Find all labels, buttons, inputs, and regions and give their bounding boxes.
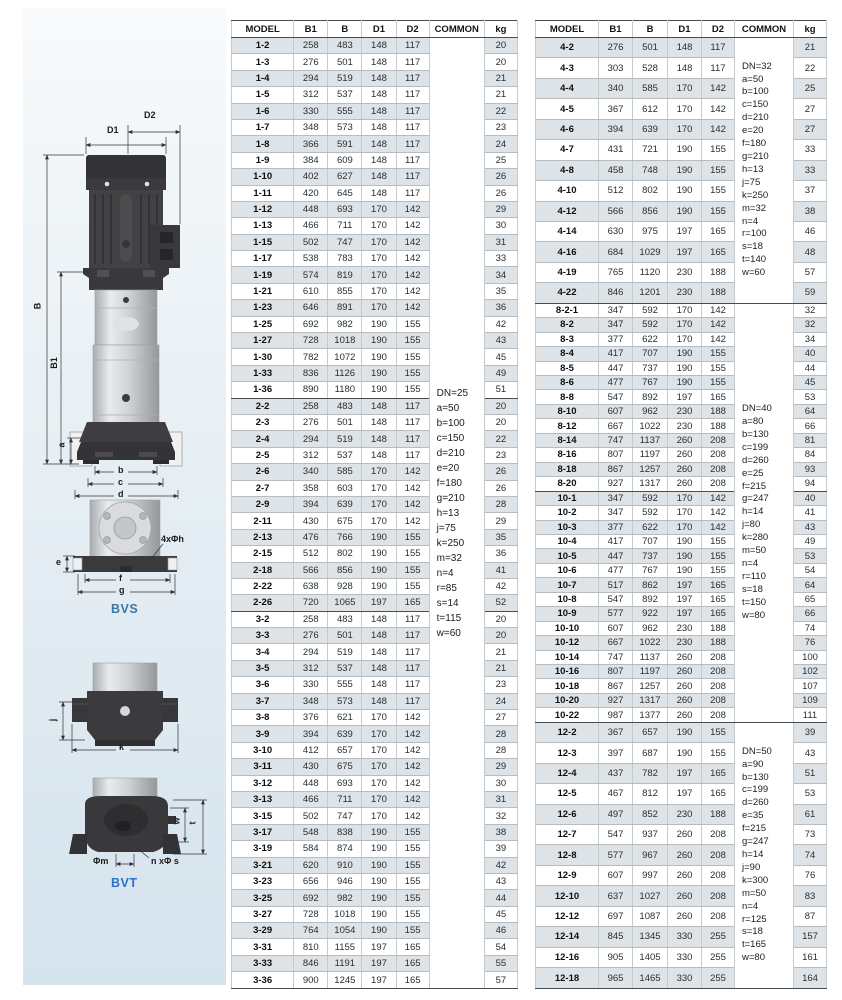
weight-cell: 39 (794, 722, 827, 742)
common-dimension-line: d=260 (742, 797, 793, 810)
model-cell: 2-2 (232, 398, 294, 414)
model-cell: 10-8 (536, 592, 599, 606)
value-cell: 1155 (328, 939, 362, 955)
value-cell: 517 (599, 578, 633, 592)
weight-cell: 26 (484, 185, 517, 201)
model-cell: 1-21 (232, 283, 294, 299)
value-cell: 591 (328, 136, 362, 152)
value-cell: 867 (599, 462, 633, 476)
weight-cell: 26 (484, 480, 517, 496)
value-cell: 148 (362, 152, 396, 168)
value-cell: 197 (668, 390, 702, 404)
value-cell: 347 (599, 491, 633, 505)
value-cell: 547 (599, 592, 633, 606)
table-row: 12-2367657190155DN=50a=90b=130c=199d=260… (536, 722, 827, 742)
common-dimension-line: d=260 (742, 455, 793, 468)
value-cell: 208 (702, 865, 735, 885)
weight-cell: 83 (794, 886, 827, 906)
value-cell: 190 (362, 333, 396, 349)
value-cell: 340 (599, 78, 633, 98)
value-cell: 170 (362, 710, 396, 726)
value-cell: 142 (396, 513, 429, 529)
weight-cell: 46 (484, 923, 517, 939)
value-cell: 170 (668, 119, 702, 139)
value-cell: 573 (328, 119, 362, 135)
weight-cell: 164 (794, 968, 827, 989)
value-cell: 208 (702, 825, 735, 845)
value-cell: 190 (668, 743, 702, 763)
value-cell: 170 (668, 99, 702, 119)
value-cell: 197 (362, 972, 396, 989)
value-cell: 142 (396, 283, 429, 299)
value-cell: 190 (362, 857, 396, 873)
dim-label-n-phi-s: n xΦ s (151, 856, 179, 866)
dim-label-w: w (172, 817, 182, 824)
value-cell: 142 (396, 710, 429, 726)
model-cell: 3-7 (232, 693, 294, 709)
common-dimension-line: n=4 (742, 216, 793, 229)
value-cell: 622 (633, 332, 668, 346)
value-cell: 312 (294, 660, 328, 676)
column-header: kg (484, 21, 517, 38)
model-cell: 3-21 (232, 857, 294, 873)
model-cell: 1-12 (232, 201, 294, 217)
value-cell: 155 (396, 529, 429, 545)
value-cell: 620 (294, 857, 328, 873)
common-dimension-line: m=50 (742, 888, 793, 901)
value-cell: 190 (362, 546, 396, 562)
model-cell: 1-9 (232, 152, 294, 168)
weight-cell: 36 (484, 300, 517, 316)
value-cell: 190 (668, 375, 702, 389)
dim-label-g: g (119, 585, 125, 595)
value-cell: 927 (599, 477, 633, 491)
model-cell: 3-19 (232, 841, 294, 857)
model-cell: 1-7 (232, 119, 294, 135)
value-cell: 856 (328, 562, 362, 578)
value-cell: 148 (362, 54, 396, 70)
common-dimension-line: n=4 (437, 566, 484, 581)
value-cell: 975 (633, 221, 668, 241)
value-cell: 117 (396, 54, 429, 70)
dim-label-d1: D1 (107, 125, 119, 135)
value-cell: 621 (328, 710, 362, 726)
model-cell: 1-11 (232, 185, 294, 201)
value-cell: 142 (396, 726, 429, 742)
value-cell: 117 (396, 398, 429, 414)
value-cell: 170 (362, 218, 396, 234)
model-cell: 4-22 (536, 283, 599, 303)
weight-cell: 36 (484, 546, 517, 562)
value-cell: 657 (633, 722, 668, 742)
weight-cell: 35 (484, 283, 517, 299)
column-header: D2 (702, 21, 735, 38)
column-header: kg (794, 21, 827, 38)
value-cell: 592 (633, 303, 668, 317)
value-cell: 190 (668, 563, 702, 577)
weight-cell: 21 (794, 38, 827, 58)
value-cell: 155 (702, 347, 735, 361)
model-cell: 10-16 (536, 665, 599, 679)
model-cell: 12-18 (536, 968, 599, 989)
value-cell: 748 (633, 160, 668, 180)
value-cell: 155 (396, 562, 429, 578)
value-cell: 170 (362, 496, 396, 512)
common-dimension-line: w=80 (742, 610, 793, 623)
value-cell: 142 (702, 303, 735, 317)
weight-cell: 59 (794, 283, 827, 303)
value-cell: 862 (633, 578, 668, 592)
model-cell: 1-10 (232, 169, 294, 185)
value-cell: 639 (328, 726, 362, 742)
value-cell: 208 (702, 665, 735, 679)
value-cell: 142 (396, 251, 429, 267)
value-cell: 497 (599, 804, 633, 824)
value-cell: 117 (396, 447, 429, 463)
value-cell: 1027 (633, 886, 668, 906)
common-dimension-line: w=60 (742, 267, 793, 280)
value-cell: 142 (396, 496, 429, 512)
weight-cell: 33 (794, 160, 827, 180)
value-cell: 802 (633, 181, 668, 201)
model-cell: 1-33 (232, 365, 294, 381)
value-cell: 538 (294, 251, 328, 267)
common-dimension-line: k=250 (437, 536, 484, 551)
value-cell: 466 (294, 791, 328, 807)
dim-label-d: d (118, 489, 124, 499)
weight-cell: 61 (794, 804, 827, 824)
weight-cell: 42 (484, 316, 517, 332)
value-cell: 188 (702, 621, 735, 635)
weight-cell: 20 (484, 414, 517, 430)
weight-cell: 35 (484, 529, 517, 545)
value-cell: 367 (599, 722, 633, 742)
weight-cell: 38 (484, 824, 517, 840)
value-cell: 155 (396, 873, 429, 889)
common-dimensions-list: DN=50a=90b=130c=199d=260e=35f=215g=247h=… (735, 746, 793, 965)
value-cell: 148 (362, 693, 396, 709)
common-dimension-line: s=14 (437, 596, 484, 611)
value-cell: 437 (599, 763, 633, 783)
value-cell: 260 (668, 679, 702, 693)
weight-cell: 43 (484, 873, 517, 889)
value-cell: 142 (702, 78, 735, 98)
column-header: COMMON (429, 21, 484, 38)
weight-cell: 22 (484, 431, 517, 447)
value-cell: 294 (294, 644, 328, 660)
common-dimension-line: m=32 (437, 551, 484, 566)
weight-cell: 66 (794, 607, 827, 621)
value-cell: 687 (633, 743, 668, 763)
weight-cell: 57 (484, 972, 517, 989)
value-cell: 276 (294, 414, 328, 430)
value-cell: 467 (599, 784, 633, 804)
value-cell: 170 (362, 464, 396, 480)
value-cell: 856 (633, 201, 668, 221)
value-cell: 512 (599, 181, 633, 201)
value-cell: 476 (294, 529, 328, 545)
value-cell: 548 (294, 824, 328, 840)
model-cell: 1-25 (232, 316, 294, 332)
value-cell: 117 (396, 70, 429, 86)
value-cell: 852 (633, 804, 668, 824)
weight-cell: 32 (484, 808, 517, 824)
value-cell: 230 (668, 636, 702, 650)
model-cell: 8-2-1 (536, 303, 599, 317)
weight-cell: 24 (484, 136, 517, 152)
weight-cell: 20 (484, 628, 517, 644)
weight-cell: 20 (484, 38, 517, 54)
model-cell: 1-3 (232, 54, 294, 70)
value-cell: 155 (396, 923, 429, 939)
weight-cell: 51 (484, 382, 517, 398)
value-cell: 684 (599, 242, 633, 262)
value-cell: 420 (294, 185, 328, 201)
value-cell: 347 (599, 318, 633, 332)
model-cell: 3-23 (232, 873, 294, 889)
value-cell: 142 (396, 300, 429, 316)
value-cell: 190 (668, 347, 702, 361)
column-header: D2 (396, 21, 429, 38)
common-dimension-line: e=20 (742, 125, 793, 138)
value-cell: 603 (328, 480, 362, 496)
model-cell: 8-20 (536, 477, 599, 491)
weight-cell: 32 (794, 303, 827, 317)
weight-cell: 55 (484, 955, 517, 971)
value-cell: 260 (668, 665, 702, 679)
value-cell: 165 (702, 784, 735, 804)
common-dimension-line: w=80 (742, 952, 793, 965)
value-cell: 117 (702, 58, 735, 78)
value-cell: 155 (396, 316, 429, 332)
value-cell: 1257 (633, 679, 668, 693)
weight-cell: 81 (794, 433, 827, 447)
value-cell: 528 (633, 58, 668, 78)
weight-cell: 28 (484, 742, 517, 758)
value-cell: 117 (396, 611, 429, 627)
model-cell: 2-15 (232, 546, 294, 562)
model-cell: 3-27 (232, 906, 294, 922)
common-dimensions-cell: DN=40a=80b=130c=199d=260e=25f=215g=247h=… (735, 303, 794, 722)
value-cell: 260 (668, 845, 702, 865)
common-dimension-line: r=85 (437, 581, 484, 596)
value-cell: 230 (668, 262, 702, 282)
model-cell: 1-13 (232, 218, 294, 234)
weight-cell: 22 (484, 103, 517, 119)
value-cell: 637 (599, 886, 633, 906)
value-cell: 1405 (633, 947, 668, 967)
value-cell: 155 (396, 841, 429, 857)
value-cell: 276 (294, 628, 328, 644)
common-dimension-line: m=32 (742, 203, 793, 216)
value-cell: 737 (633, 549, 668, 563)
header-row: MODELB1BD1D2COMMONkg (536, 21, 827, 38)
weight-cell: 21 (484, 660, 517, 676)
value-cell: 148 (362, 136, 396, 152)
value-cell: 607 (599, 404, 633, 418)
value-cell: 330 (668, 947, 702, 967)
value-cell: 117 (396, 693, 429, 709)
weight-cell: 25 (484, 152, 517, 168)
value-cell: 330 (294, 677, 328, 693)
common-dimension-line: e=20 (437, 461, 484, 476)
value-cell: 117 (396, 38, 429, 54)
value-cell: 483 (328, 611, 362, 627)
value-cell: 412 (294, 742, 328, 758)
weight-cell: 66 (794, 419, 827, 433)
value-cell: 458 (599, 160, 633, 180)
common-dimension-line: r=100 (742, 228, 793, 241)
model-cell: 4-10 (536, 181, 599, 201)
value-cell: 812 (633, 784, 668, 804)
weight-cell: 65 (794, 592, 827, 606)
bvt-series-label: BVT (111, 876, 138, 890)
value-cell: 1345 (633, 927, 668, 947)
model-cell: 10-10 (536, 621, 599, 635)
value-cell: 607 (599, 621, 633, 635)
value-cell: 447 (599, 361, 633, 375)
value-cell: 142 (396, 201, 429, 217)
value-cell: 117 (396, 119, 429, 135)
value-cell: 170 (362, 251, 396, 267)
model-cell: 3-3 (232, 628, 294, 644)
value-cell: 962 (633, 404, 668, 418)
value-cell: 190 (362, 873, 396, 889)
common-dimension-line: h=13 (742, 164, 793, 177)
value-cell: 260 (668, 865, 702, 885)
value-cell: 197 (668, 607, 702, 621)
value-cell: 190 (668, 201, 702, 221)
model-cell: 8-3 (536, 332, 599, 346)
weight-cell: 20 (484, 611, 517, 627)
model-cell: 4-8 (536, 160, 599, 180)
value-cell: 117 (396, 87, 429, 103)
value-cell: 155 (702, 140, 735, 160)
table-body: 4-2276501148117DN=32a=50b=100c=150d=210e… (536, 38, 827, 989)
model-cell: 10-5 (536, 549, 599, 563)
weight-cell: 76 (794, 636, 827, 650)
weight-cell: 53 (794, 784, 827, 804)
model-cell: 12-10 (536, 886, 599, 906)
model-cell: 12-6 (536, 804, 599, 824)
weight-cell: 21 (484, 87, 517, 103)
value-cell: 577 (599, 845, 633, 865)
value-cell: 1087 (633, 906, 668, 926)
model-cell: 10-20 (536, 693, 599, 707)
value-cell: 348 (294, 119, 328, 135)
weight-cell: 27 (794, 99, 827, 119)
value-cell: 208 (702, 650, 735, 664)
value-cell: 142 (702, 332, 735, 346)
model-cell: 3-13 (232, 791, 294, 807)
model-cell: 12-12 (536, 906, 599, 926)
bvs-series-label: BVS (111, 602, 138, 616)
value-cell: 1029 (633, 242, 668, 262)
common-dimension-line: s=18 (742, 926, 793, 939)
model-cell: 12-8 (536, 845, 599, 865)
model-cell: 2-6 (232, 464, 294, 480)
value-cell: 807 (599, 448, 633, 462)
value-cell: 155 (702, 361, 735, 375)
model-cell: 10-9 (536, 607, 599, 621)
value-cell: 190 (362, 578, 396, 594)
weight-cell: 73 (794, 825, 827, 845)
model-cell: 12-5 (536, 784, 599, 804)
value-cell: 197 (362, 939, 396, 955)
value-cell: 905 (599, 947, 633, 967)
value-cell: 170 (362, 742, 396, 758)
model-cell: 2-3 (232, 414, 294, 430)
value-cell: 747 (599, 433, 633, 447)
weight-cell: 43 (484, 333, 517, 349)
weight-cell: 109 (794, 693, 827, 707)
value-cell: 537 (328, 447, 362, 463)
value-cell: 384 (294, 152, 328, 168)
model-cell: 3-4 (232, 644, 294, 660)
value-cell: 155 (396, 546, 429, 562)
common-dimension-line: n=4 (742, 901, 793, 914)
value-cell: 1191 (328, 955, 362, 971)
value-cell: 165 (396, 595, 429, 611)
value-cell: 208 (702, 679, 735, 693)
value-cell: 294 (294, 70, 328, 86)
table-header: MODELB1BD1D2COMMONkg (536, 21, 827, 38)
value-cell: 987 (599, 708, 633, 722)
common-dimension-line: h=14 (742, 506, 793, 519)
model-cell: 3-9 (232, 726, 294, 742)
value-cell: 892 (633, 390, 668, 404)
weight-cell: 26 (484, 464, 517, 480)
dim-label-bolt-holes: 4xΦh (161, 534, 184, 544)
value-cell: 537 (328, 660, 362, 676)
base-side-view (59, 663, 178, 753)
weight-cell: 45 (484, 349, 517, 365)
value-cell: 737 (633, 361, 668, 375)
value-cell: 142 (702, 318, 735, 332)
value-cell: 260 (668, 886, 702, 906)
value-cell: 170 (362, 759, 396, 775)
model-cell: 4-6 (536, 119, 599, 139)
value-cell: 946 (328, 873, 362, 889)
dim-label-j: j (47, 719, 57, 722)
weight-cell: 23 (484, 119, 517, 135)
common-dimension-line: f=180 (437, 476, 484, 491)
weight-cell: 57 (794, 262, 827, 282)
common-dimension-line: f=215 (742, 481, 793, 494)
weight-cell: 29 (484, 513, 517, 529)
common-dimension-line: b=100 (437, 416, 484, 431)
value-cell: 585 (633, 78, 668, 98)
pump-technical-drawing (23, 8, 226, 985)
table-header: MODELB1BD1D2COMMONkg (232, 21, 518, 38)
value-cell: 646 (294, 300, 328, 316)
value-cell: 967 (633, 845, 668, 865)
common-dimension-line: b=130 (742, 429, 793, 442)
value-cell: 170 (362, 201, 396, 217)
weight-cell: 43 (794, 743, 827, 763)
model-cell: 8-18 (536, 462, 599, 476)
value-cell: 377 (599, 332, 633, 346)
value-cell: 720 (294, 595, 328, 611)
value-cell: 845 (599, 927, 633, 947)
value-cell: 155 (396, 906, 429, 922)
model-cell: 3-8 (232, 710, 294, 726)
value-cell: 142 (396, 759, 429, 775)
value-cell: 592 (633, 491, 668, 505)
weight-cell: 42 (484, 578, 517, 594)
dim-label-f: f (119, 573, 122, 583)
common-dimension-line: t=140 (742, 254, 793, 267)
